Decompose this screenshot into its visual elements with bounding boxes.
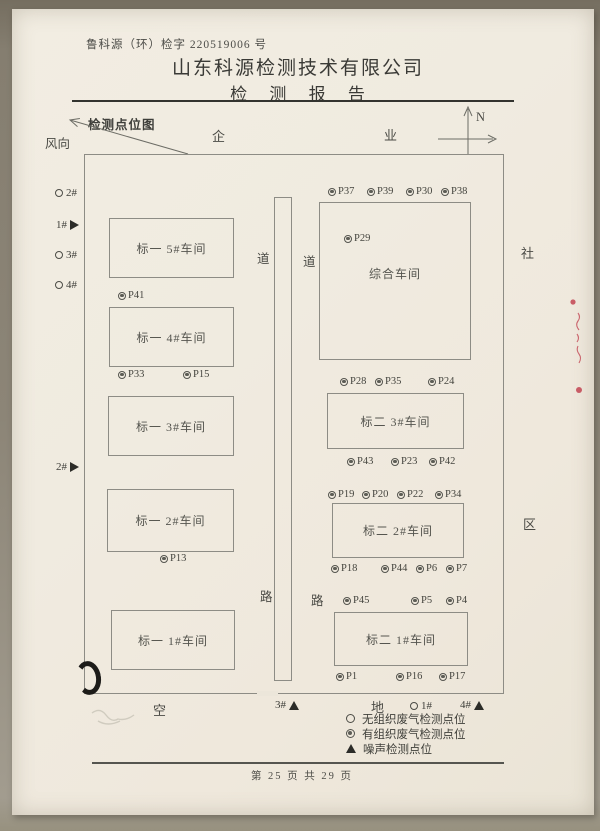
red-ink-marks xyxy=(566,293,590,397)
company-name: 山东科源检测技术有限公司 xyxy=(88,53,508,80)
organized-gas-point-icon xyxy=(381,565,389,573)
noise-marker: 2# xyxy=(56,461,79,473)
workshop-biao1-3: 标一 3#车间 xyxy=(108,396,234,456)
footer-divider xyxy=(92,762,504,764)
detection-point: P45 xyxy=(343,595,369,606)
organized-gas-point-icon xyxy=(328,188,336,196)
detection-point: P30 xyxy=(406,186,432,197)
organized-gas-point-icon xyxy=(160,555,168,563)
noise-marker: 1# xyxy=(56,219,79,231)
surrounding-label-qi: 企 xyxy=(212,126,225,145)
detection-point: P44 xyxy=(381,563,407,574)
compass-north-label: N xyxy=(476,110,485,125)
workshop-biao1-1: 标一 1#车间 xyxy=(111,610,235,670)
organized-gas-point-icon xyxy=(406,188,414,196)
road-label-dao-left: 道 xyxy=(257,248,270,267)
organized-gas-point-icon xyxy=(446,565,454,573)
organized-gas-point-icon xyxy=(367,188,375,196)
open-circle-icon xyxy=(55,189,63,197)
organized-gas-point-icon xyxy=(435,491,443,499)
organized-gas-point-icon xyxy=(343,597,351,605)
organized-gas-point-icon xyxy=(183,371,191,379)
detection-point: P22 xyxy=(397,489,423,500)
organized-gas-point-icon xyxy=(118,292,126,300)
workshop-biao2-3: 标二 3#车间 xyxy=(327,393,464,449)
double-circle-icon xyxy=(346,729,355,738)
triangle-up-icon xyxy=(289,701,299,710)
unorganized-gas-marker: 4# xyxy=(55,279,77,291)
wind-direction-arrow-icon xyxy=(64,112,194,160)
detection-point: P17 xyxy=(439,671,465,682)
organized-gas-point-icon xyxy=(331,565,339,573)
workshop-biao2-1: 标二 1#车间 xyxy=(334,612,468,666)
road-label-lu-right: 路 xyxy=(311,590,324,609)
organized-gas-point-icon xyxy=(362,491,370,499)
organized-gas-point-icon xyxy=(439,673,447,681)
triangle-right-icon xyxy=(70,220,79,230)
unorganized-gas-marker: 2# xyxy=(55,187,77,199)
detection-point: P34 xyxy=(435,489,461,500)
organized-gas-point-icon xyxy=(340,378,348,386)
unorganized-gas-marker: 3# xyxy=(55,249,77,261)
organized-gas-point-icon xyxy=(397,491,405,499)
organized-gas-point-icon xyxy=(118,371,126,379)
detection-point: P43 xyxy=(347,456,373,467)
surrounding-label-kong: 空 xyxy=(153,700,166,719)
workshop-biao1-2: 标一 2#车间 xyxy=(107,489,234,552)
detection-point: P18 xyxy=(331,563,357,574)
surrounding-label-she: 社 xyxy=(521,243,534,262)
road-label-dao-right: 道 xyxy=(303,251,316,270)
organized-gas-point-icon xyxy=(428,378,436,386)
detection-point: P19 xyxy=(328,489,354,500)
scanned-report-page: 鲁科源（环）检字 220519006 号 山东科源检测技术有限公司 检 测 报 … xyxy=(0,0,600,831)
surrounding-label-ye: 业 xyxy=(384,125,397,144)
workshop-biao2-2: 标二 2#车间 xyxy=(332,503,464,558)
detection-point: P13 xyxy=(160,553,186,564)
organized-gas-point-icon xyxy=(336,673,344,681)
page-number: 第 25 页 共 29 页 xyxy=(92,768,512,783)
detection-point: P16 xyxy=(396,671,422,682)
organized-gas-point-icon xyxy=(396,673,404,681)
organized-gas-point-icon xyxy=(347,458,355,466)
legend-item: 有组织废气检测点位 xyxy=(346,726,466,741)
triangle-up-icon xyxy=(474,701,484,710)
workshop-comprehensive: 综合车间 xyxy=(319,202,471,360)
noise-marker: 4# xyxy=(460,699,484,711)
road-label-lu-left: 路 xyxy=(260,586,273,605)
compass-icon xyxy=(436,104,502,160)
pencil-smudge xyxy=(88,705,138,731)
header-divider xyxy=(72,100,514,102)
detection-point: P37 xyxy=(328,186,354,197)
organized-gas-point-icon xyxy=(411,597,419,605)
organized-gas-point-icon xyxy=(429,458,437,466)
detection-point: P35 xyxy=(375,376,401,387)
organized-gas-point-icon xyxy=(344,235,352,243)
noise-marker: 3# xyxy=(275,699,299,711)
legend: 无组织废气检测点位 有组织废气检测点位 噪声检测点位 xyxy=(346,711,466,756)
document-number: 鲁科源（环）检字 220519006 号 xyxy=(86,36,267,52)
organized-gas-point-icon xyxy=(446,597,454,605)
boundary-road-gap xyxy=(257,691,278,696)
detection-point: P33 xyxy=(118,369,144,380)
legend-item: 噪声检测点位 xyxy=(346,741,466,756)
detection-point: P7 xyxy=(446,563,467,574)
road-strip xyxy=(274,197,292,681)
workshop-biao1-4: 标一 4#车间 xyxy=(109,307,234,367)
organized-gas-point-icon xyxy=(441,188,449,196)
legend-item: 无组织废气检测点位 xyxy=(346,711,466,726)
triangle-right-icon xyxy=(70,462,79,472)
detection-point: P29 xyxy=(344,233,370,244)
organized-gas-point-icon xyxy=(328,491,336,499)
detection-point: P15 xyxy=(183,369,209,380)
detection-point: P6 xyxy=(416,563,437,574)
detection-point: P42 xyxy=(429,456,455,467)
organized-gas-point-icon xyxy=(391,458,399,466)
organized-gas-point-icon xyxy=(375,378,383,386)
detection-point: P20 xyxy=(362,489,388,500)
detection-point: P24 xyxy=(428,376,454,387)
filled-triangle-icon xyxy=(346,744,356,753)
workshop-biao1-5: 标一 5#车间 xyxy=(109,218,234,278)
detection-point: P23 xyxy=(391,456,417,467)
detection-point: P38 xyxy=(441,186,467,197)
organized-gas-point-icon xyxy=(416,565,424,573)
detection-point: P39 xyxy=(367,186,393,197)
detection-point: P1 xyxy=(336,671,357,682)
open-circle-icon xyxy=(346,714,355,723)
surrounding-label-qu: 区 xyxy=(523,514,536,533)
open-circle-icon xyxy=(55,281,63,289)
open-circle-icon xyxy=(410,702,418,710)
detection-point: P4 xyxy=(446,595,467,606)
detection-point: P5 xyxy=(411,595,432,606)
detection-point: P28 xyxy=(340,376,366,387)
detection-point: P41 xyxy=(118,290,144,301)
open-circle-icon xyxy=(55,251,63,259)
